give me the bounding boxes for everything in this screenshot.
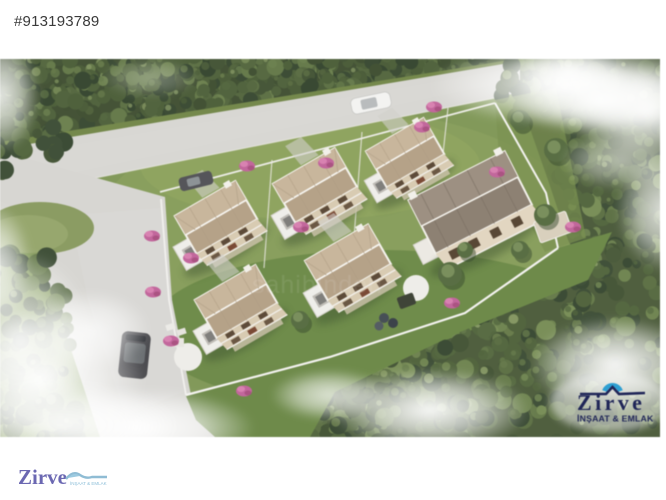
svg-text:İNŞAAT & EMLAK: İNŞAAT & EMLAK (70, 480, 107, 486)
svg-text:Zirve: Zirve (18, 465, 67, 489)
svg-text:Zirve: Zirve (577, 390, 645, 415)
svg-text:İNŞAAT & EMLAK: İNŞAAT & EMLAK (577, 414, 654, 424)
svg-text:sahibinden: sahibinden (252, 271, 383, 299)
